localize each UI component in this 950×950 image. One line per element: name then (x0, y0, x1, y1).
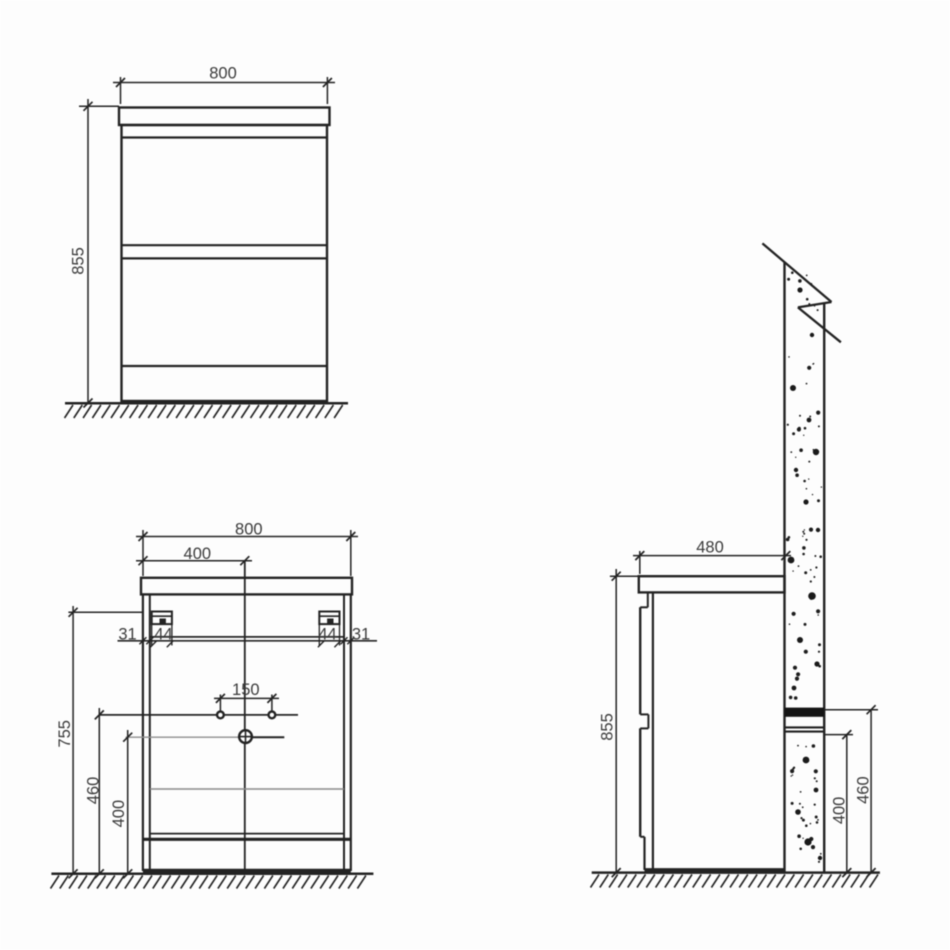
svg-text:400: 400 (110, 800, 128, 828)
svg-text:800: 800 (209, 65, 237, 83)
svg-text:855: 855 (70, 247, 88, 275)
svg-text:800: 800 (235, 520, 263, 538)
svg-text:460: 460 (85, 777, 103, 805)
svg-text:150: 150 (232, 681, 260, 699)
svg-text:480: 480 (696, 539, 724, 557)
svg-text:31: 31 (118, 626, 136, 644)
svg-text:855: 855 (599, 713, 617, 741)
svg-text:400: 400 (830, 797, 848, 825)
svg-text:44: 44 (318, 626, 336, 644)
svg-text:44: 44 (154, 626, 172, 644)
svg-text:400: 400 (184, 545, 212, 563)
svg-text:460: 460 (854, 776, 872, 804)
svg-text:31: 31 (352, 626, 370, 644)
svg-text:755: 755 (56, 720, 74, 748)
